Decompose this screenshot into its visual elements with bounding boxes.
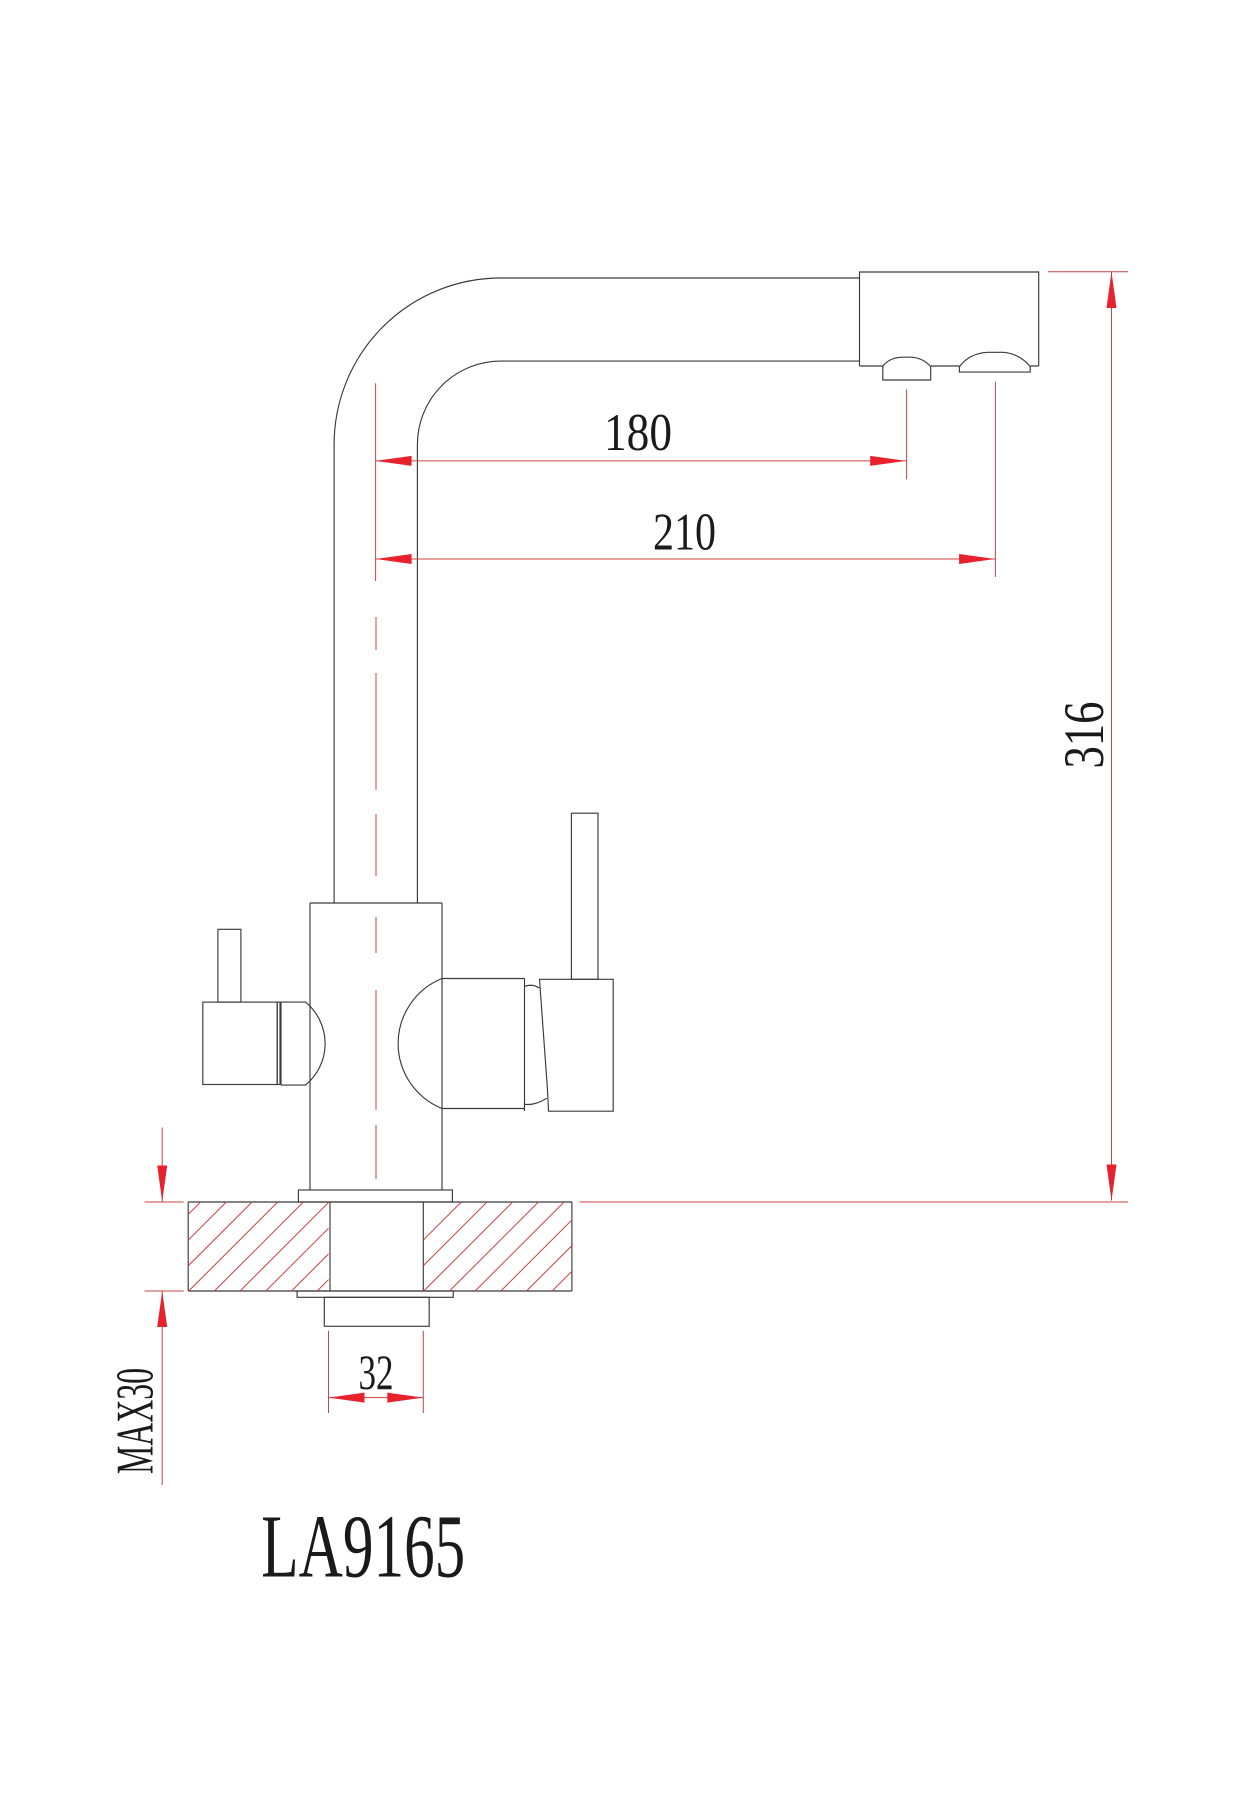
svg-text:MAX30: MAX30 [107, 1368, 165, 1474]
svg-text:32: 32 [359, 1344, 394, 1400]
svg-text:210: 210 [653, 503, 716, 561]
svg-text:316: 316 [1053, 702, 1116, 769]
svg-text:180: 180 [604, 404, 672, 462]
svg-text:LA9165: LA9165 [261, 1498, 465, 1597]
